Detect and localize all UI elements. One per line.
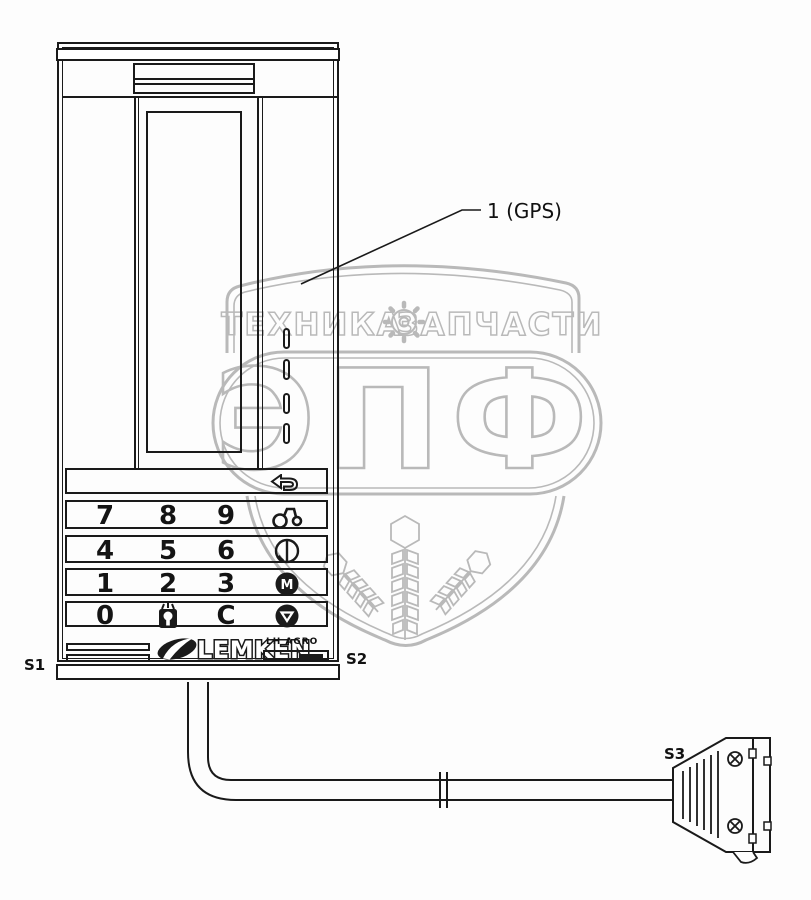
connector-screw-icon xyxy=(728,752,742,766)
label-s1: S1 xyxy=(24,656,45,674)
terminal-top-bar xyxy=(56,48,340,61)
connector-tail xyxy=(733,852,757,863)
cable xyxy=(188,682,673,808)
cable-and-connector-layer xyxy=(0,0,811,900)
terminal-bottom-bar xyxy=(56,664,340,680)
connector-s3 xyxy=(673,738,771,863)
label-s2: S2 xyxy=(346,650,367,668)
label-s3: S3 xyxy=(664,745,685,763)
cable-break-mark xyxy=(440,772,447,808)
connector-screw-icon xyxy=(728,819,742,833)
callout-part-gps: 1 (GPS) xyxy=(487,199,562,223)
parts-diagram-page: ТЕХНИКА ЗАПЧАСТИ ЭПФ 7 8 9 xyxy=(0,0,811,900)
callout-leader-line xyxy=(301,210,481,284)
